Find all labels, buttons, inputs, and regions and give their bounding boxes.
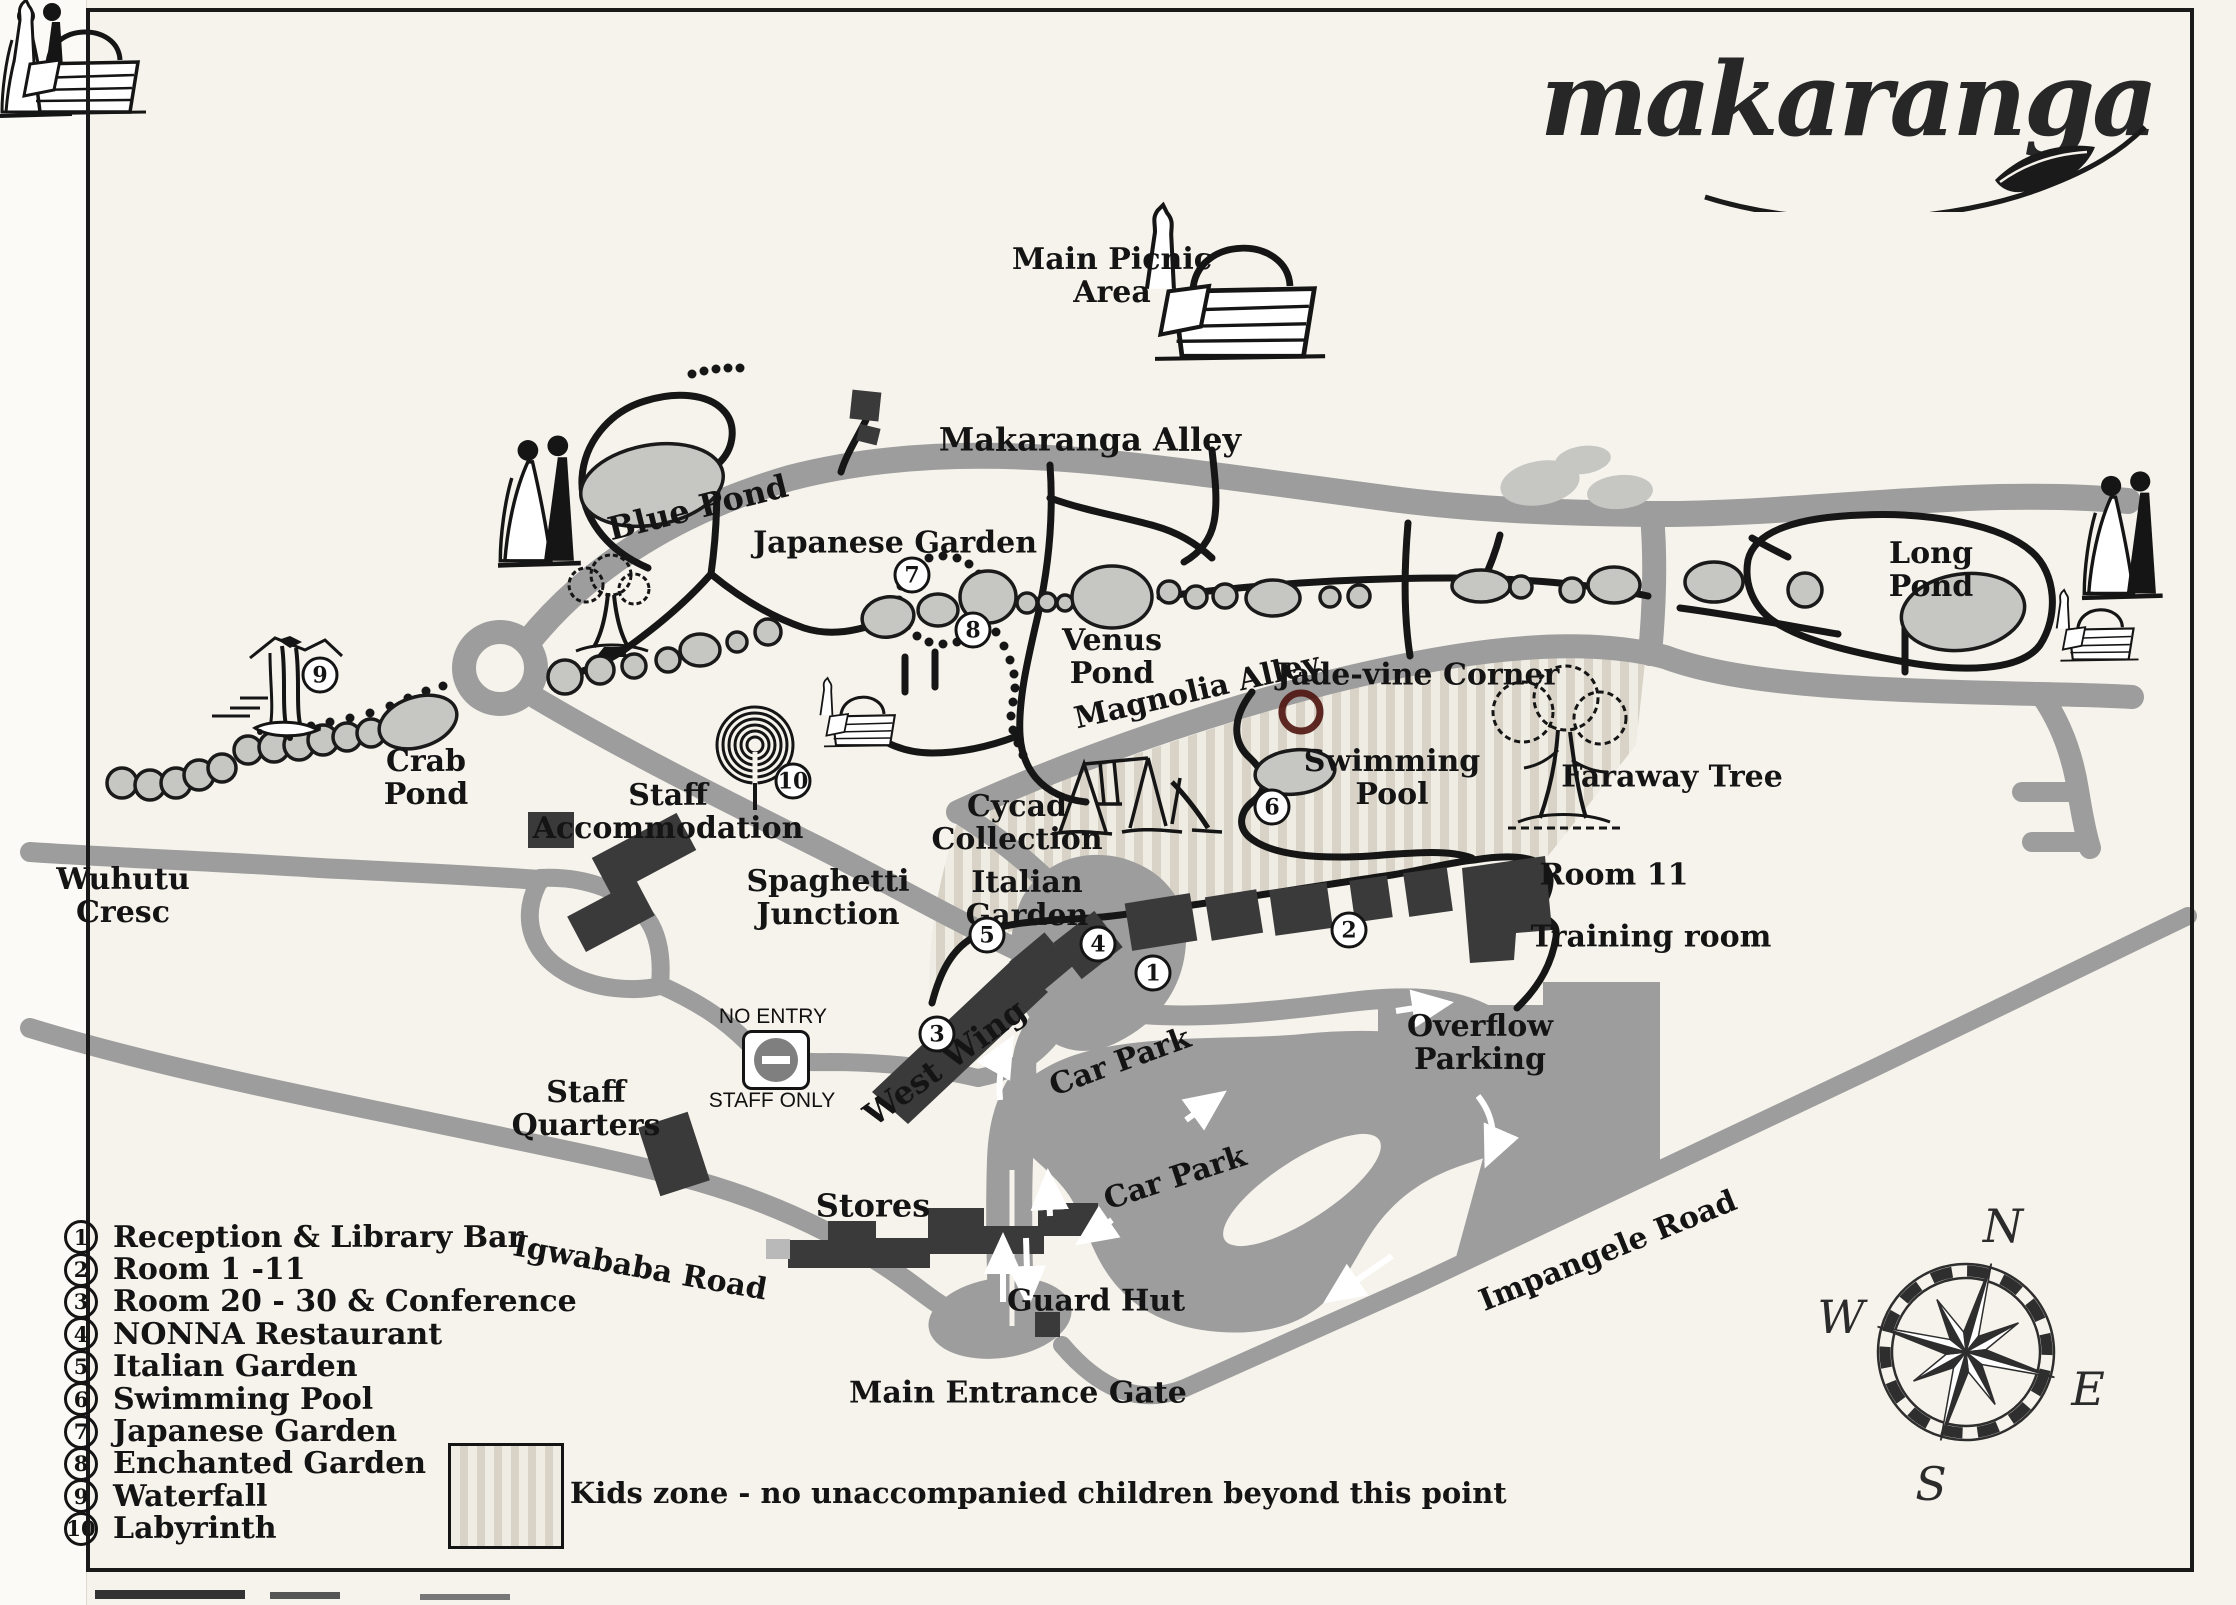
legend-num-9: 9 xyxy=(64,1479,98,1513)
legend-label-6: Swimming Pool xyxy=(113,1382,373,1417)
no-entry-sign-icon xyxy=(742,1030,810,1090)
label-faraway-tree: Faraway Tree xyxy=(1561,761,1783,794)
label-staff-quarters: Staff Quarters xyxy=(512,1076,661,1142)
legend-num-10: 10 xyxy=(64,1512,98,1546)
legend-label-3: Room 20 - 30 & Conference xyxy=(113,1284,577,1319)
legend-num-5: 5 xyxy=(64,1350,98,1384)
label-cycad-collection: Cycad Collection xyxy=(931,790,1102,856)
legend-num-4: 4 xyxy=(64,1317,98,1351)
legend-item-reception: 1 Reception & Library Bar xyxy=(64,1221,577,1253)
compass-west-label: W xyxy=(1817,1290,1864,1344)
label-long-pond: Long Pond xyxy=(1889,537,1974,603)
legend-label-10: Labyrinth xyxy=(113,1511,277,1546)
label-overflow-parking: Overflow Parking xyxy=(1407,1010,1553,1076)
marker-10-labyrinth: 10 xyxy=(775,763,812,800)
legend-label-2: Room 1 -11 xyxy=(113,1252,306,1287)
legend-item-nonna: 4 NONNA Restaurant xyxy=(64,1318,577,1350)
staff-only-label: STAFF ONLY xyxy=(709,1089,835,1113)
scan-marks xyxy=(95,1590,510,1600)
legend-item-swimming-pool: 6 Swimming Pool xyxy=(64,1383,577,1415)
label-jade-vine-corner: Jade-vine Corner xyxy=(1277,659,1560,692)
label-makaranga-alley: Makaranga Alley xyxy=(939,422,1241,457)
picnic-basket-small-illustration xyxy=(820,678,899,746)
label-crab-pond: Crab Pond xyxy=(384,745,469,811)
label-main-picnic-area: Main Picnic Area xyxy=(1012,243,1212,309)
label-swimming-pool: Swimming Pool xyxy=(1304,745,1481,811)
legend-item-rooms: 2 Room 1 -11 xyxy=(64,1253,577,1285)
marker-9-waterfall: 9 xyxy=(302,657,339,694)
legend-item-italian-garden: 5 Italian Garden xyxy=(64,1351,577,1383)
compass-rose xyxy=(1852,1238,2080,1466)
label-spaghetti-junction: Spaghetti Junction xyxy=(746,865,909,931)
picnic-basket-right-illustration xyxy=(2057,590,2139,661)
wedding-couple-left-illustration xyxy=(498,435,581,565)
marker-1-reception: 1 xyxy=(1135,955,1172,992)
legend-num-2: 2 xyxy=(64,1253,98,1287)
legend-label-7: Japanese Garden xyxy=(113,1414,397,1449)
no-entry-label: NO ENTRY xyxy=(719,1005,827,1029)
marker-8-enchanted-garden: 8 xyxy=(955,612,992,649)
label-guard-hut: Guard Hut xyxy=(1007,1285,1185,1318)
legend-num-8: 8 xyxy=(64,1447,98,1481)
legend-item-conference: 3 Room 20 - 30 & Conference xyxy=(64,1286,577,1318)
label-training-room: Training room xyxy=(1531,921,1772,954)
legend-num-7: 7 xyxy=(64,1415,98,1449)
compass-east-label: E xyxy=(2071,1362,2105,1416)
marker-2-rooms: 2 xyxy=(1331,912,1368,949)
legend-label-5: Italian Garden xyxy=(113,1349,358,1384)
legend-label-9: Waterfall xyxy=(113,1479,267,1514)
legend-label-8: Enchanted Garden xyxy=(113,1446,426,1481)
label-wuhutu-cresc: Wuhutu Cresc xyxy=(56,863,190,929)
compass-north-label: N xyxy=(1983,1199,2023,1253)
label-main-entrance-gate: Main Entrance Gate xyxy=(849,1377,1187,1410)
marker-3-conference: 3 xyxy=(919,1016,956,1053)
marker-7-japanese-garden: 7 xyxy=(894,557,931,594)
kids-zone-swatch xyxy=(448,1443,564,1549)
label-stores: Stores xyxy=(816,1188,930,1223)
legend-num-3: 3 xyxy=(64,1285,98,1319)
legend-num-1: 1 xyxy=(64,1220,98,1254)
label-venus-pond: Venus Pond xyxy=(1062,624,1162,690)
kids-zone-note: Kids zone - no unaccompanied children be… xyxy=(570,1476,1507,1510)
label-staff-accommodation: Staff Accommodation xyxy=(533,779,804,845)
marker-4-nonna: 4 xyxy=(1080,926,1117,963)
marker-5-italian-garden: 5 xyxy=(969,917,1006,954)
logo-swoosh-icon xyxy=(1695,102,2150,212)
legend-label-1: Reception & Library Bar xyxy=(113,1220,523,1255)
legend-num-6: 6 xyxy=(64,1382,98,1416)
compass-south-label: S xyxy=(1915,1457,1947,1511)
legend-label-4: NONNA Restaurant xyxy=(113,1317,442,1352)
label-room-11: Room 11 xyxy=(1540,859,1689,892)
label-japanese-garden: Japanese Garden xyxy=(753,527,1037,560)
marker-6-swimming-pool: 6 xyxy=(1254,789,1291,826)
